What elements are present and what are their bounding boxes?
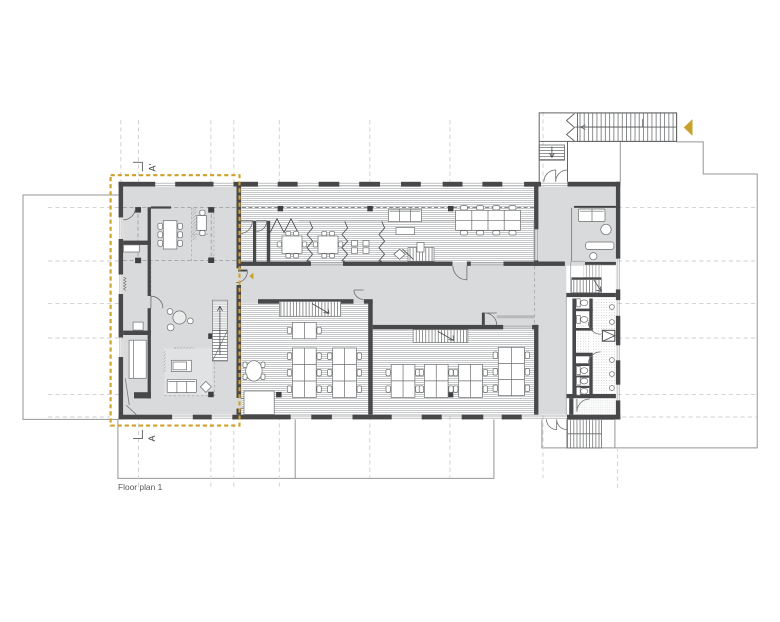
svg-text:Floor plan 1: Floor plan 1 (118, 482, 163, 492)
svg-text:A: A (147, 435, 157, 441)
svg-text:A': A' (148, 163, 158, 171)
